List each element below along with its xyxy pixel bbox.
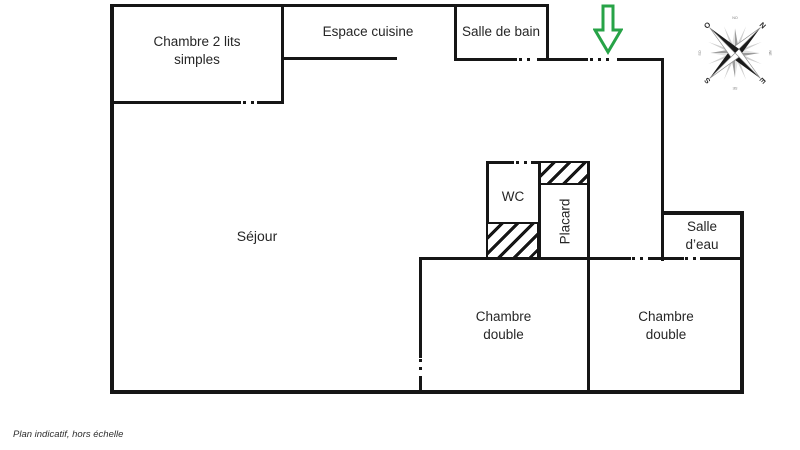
room-label-line: d’eau: [664, 236, 740, 254]
door-chambre-double-left: [419, 359, 422, 374]
wall-salle-de-bain-bottom: [454, 58, 517, 61]
room-label-line: simples: [112, 51, 282, 69]
wall-chambre-divider: [587, 161, 590, 392]
wall-entry-left-segment: [537, 58, 588, 61]
room-label-salle-de-bain: Salle de bain: [455, 23, 547, 41]
door-salle-de-bain: [519, 58, 534, 61]
wall-chambre-simples-bottom-left: [110, 101, 241, 104]
room-label-line: double: [590, 326, 742, 344]
entrance-arrow-icon: [593, 4, 623, 55]
room-label-line: Chambre: [420, 308, 587, 326]
compass-rose-icon: N E S O NO NE SE SO: [691, 6, 779, 100]
room-label-wc: WC: [488, 188, 538, 206]
wall-chambre-double-left-lower: [419, 376, 422, 392]
room-label-text: Salle de bain: [462, 24, 540, 39]
room-label-line: double: [420, 326, 587, 344]
room-label-placard: Placard: [558, 184, 573, 260]
room-label-text: Espace cuisine: [323, 24, 414, 39]
compass-letter-ne: NE: [768, 50, 772, 56]
room-label-line: Chambre 2 lits: [112, 33, 282, 51]
wall-salle-eau-bottom: [700, 257, 742, 260]
hatch-duct-lower: [486, 222, 539, 260]
door-entrance: [590, 58, 614, 61]
wall-chambre-simples-bottom-right: [257, 101, 284, 104]
wall-middle-center-segment: [648, 257, 684, 260]
wall-wc-top-left-segment: [486, 161, 514, 164]
door-wc: [516, 161, 530, 164]
wall-cuisine-bottom: [281, 57, 397, 60]
room-label-chambre-double-left: Chambre double: [420, 308, 587, 344]
wall-middle-left-segment: [419, 257, 631, 260]
room-label-line: Chambre: [590, 308, 742, 326]
footnote-disclaimer: Plan indicatif, hors échelle: [13, 429, 123, 440]
hatch-duct-upper: [538, 161, 590, 185]
room-label-text: WC: [502, 189, 525, 204]
door-chambre-double-right: [632, 257, 646, 260]
room-label-chambre-double-right: Chambre double: [590, 308, 742, 344]
wall-outer-right: [740, 211, 744, 394]
wall-outer-bottom: [110, 390, 744, 394]
compass-letter-se: SE: [732, 86, 737, 90]
wall-entry-right-segment: [617, 58, 664, 61]
room-label-text: Placard: [558, 199, 573, 245]
door-chambre-simples: [243, 101, 256, 104]
door-salle-eau: [685, 257, 698, 260]
wall-outer-jog-top: [661, 211, 744, 215]
compass-letter-no: NO: [732, 16, 738, 20]
room-label-line: Salle: [664, 218, 740, 236]
floor-plan: Chambre 2 lits simples Espace cuisine Sa…: [0, 0, 800, 450]
compass-letter-so: SO: [698, 50, 702, 55]
room-label-chambre-simples: Chambre 2 lits simples: [112, 33, 282, 69]
room-label-sejour: Séjour: [200, 227, 314, 245]
room-label-cuisine: Espace cuisine: [284, 23, 452, 41]
room-label-text: Séjour: [237, 228, 277, 244]
wall-outer-top: [110, 4, 549, 7]
room-label-salle-eau: Salle d’eau: [664, 218, 740, 254]
